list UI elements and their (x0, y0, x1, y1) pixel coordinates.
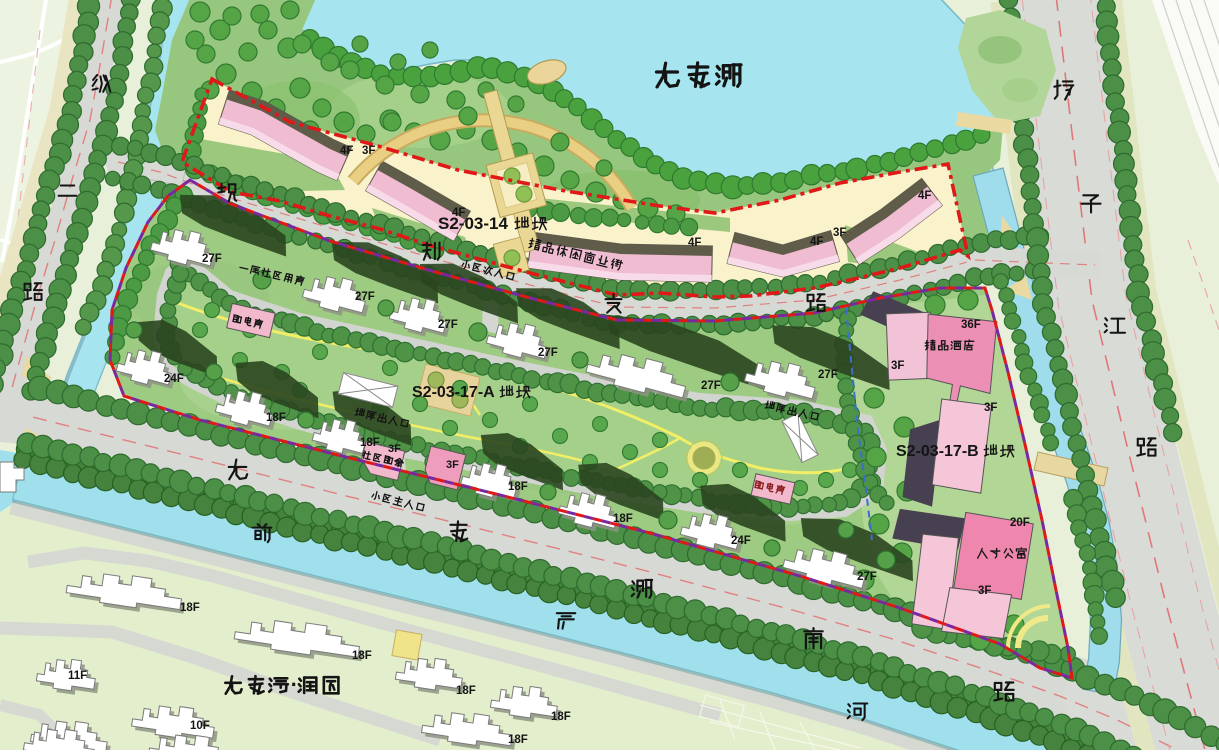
svg-text:18F: 18F (352, 650, 372, 662)
svg-text:3F: 3F (388, 443, 401, 455)
svg-text:27F: 27F (701, 380, 721, 392)
svg-text:3F: 3F (446, 459, 459, 471)
svg-text:3F: 3F (984, 402, 997, 414)
svg-text:18F: 18F (180, 602, 200, 614)
svg-text:4F: 4F (918, 190, 931, 202)
svg-text:27F: 27F (857, 571, 877, 583)
svg-text:18F: 18F (360, 437, 380, 449)
svg-text:10F: 10F (190, 720, 210, 732)
svg-text:27F: 27F (202, 253, 222, 265)
svg-text:4F: 4F (688, 237, 701, 249)
svg-text:27F: 27F (818, 369, 838, 381)
svg-text:18F: 18F (456, 685, 476, 697)
svg-text:24F: 24F (731, 535, 751, 547)
svg-text:27F: 27F (538, 347, 558, 359)
svg-text:S2-03-17-A: S2-03-17-A (412, 384, 495, 401)
svg-text:11F: 11F (68, 670, 87, 682)
svg-text:4F: 4F (810, 236, 823, 248)
svg-text:S2-03-17-B: S2-03-17-B (896, 443, 979, 460)
svg-text:4F: 4F (340, 145, 353, 157)
svg-text:20F: 20F (1010, 517, 1030, 529)
svg-text:3F: 3F (833, 227, 846, 239)
svg-text:18F: 18F (266, 412, 286, 424)
svg-text:3F: 3F (362, 145, 375, 157)
svg-text:27F: 27F (355, 291, 375, 303)
svg-text:3F: 3F (978, 585, 991, 597)
svg-text:3F: 3F (891, 360, 904, 372)
svg-text:18F: 18F (508, 734, 528, 746)
svg-text:·: · (291, 672, 298, 697)
svg-text:18F: 18F (551, 711, 571, 723)
svg-text:18F: 18F (508, 481, 528, 493)
svg-text:18F: 18F (613, 513, 633, 525)
svg-text:4F: 4F (452, 207, 465, 219)
svg-text:27F: 27F (438, 319, 458, 331)
svg-text:S2-03-14: S2-03-14 (438, 214, 508, 233)
svg-text:24F: 24F (164, 373, 184, 385)
svg-text:36F: 36F (961, 319, 981, 331)
